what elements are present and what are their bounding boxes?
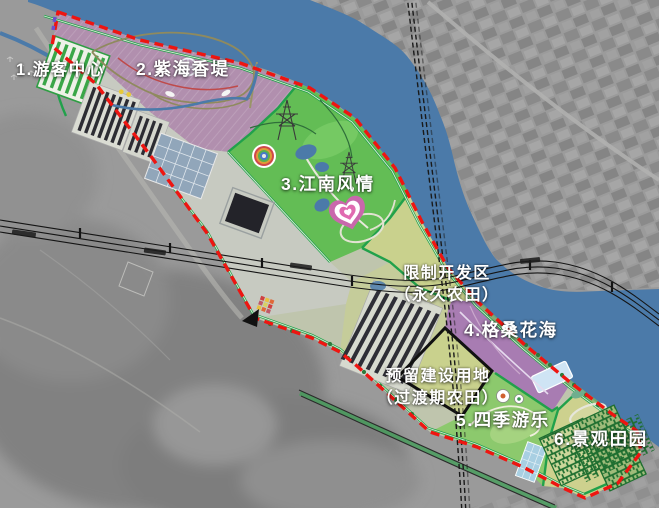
ferris-wheel-icon <box>180 59 197 76</box>
amusement-icon-1 <box>497 390 510 403</box>
pond-2 <box>315 162 329 172</box>
rainbow-plaza-icon <box>252 144 276 168</box>
amusement-icon-2 <box>515 395 524 404</box>
site-plan-screenshot: 1.游客中心 2.紫海香堤 3.江南风情 限制开发区 （永久农田） 4.格桑花海… <box>0 0 659 508</box>
site-plan-map <box>0 0 659 508</box>
